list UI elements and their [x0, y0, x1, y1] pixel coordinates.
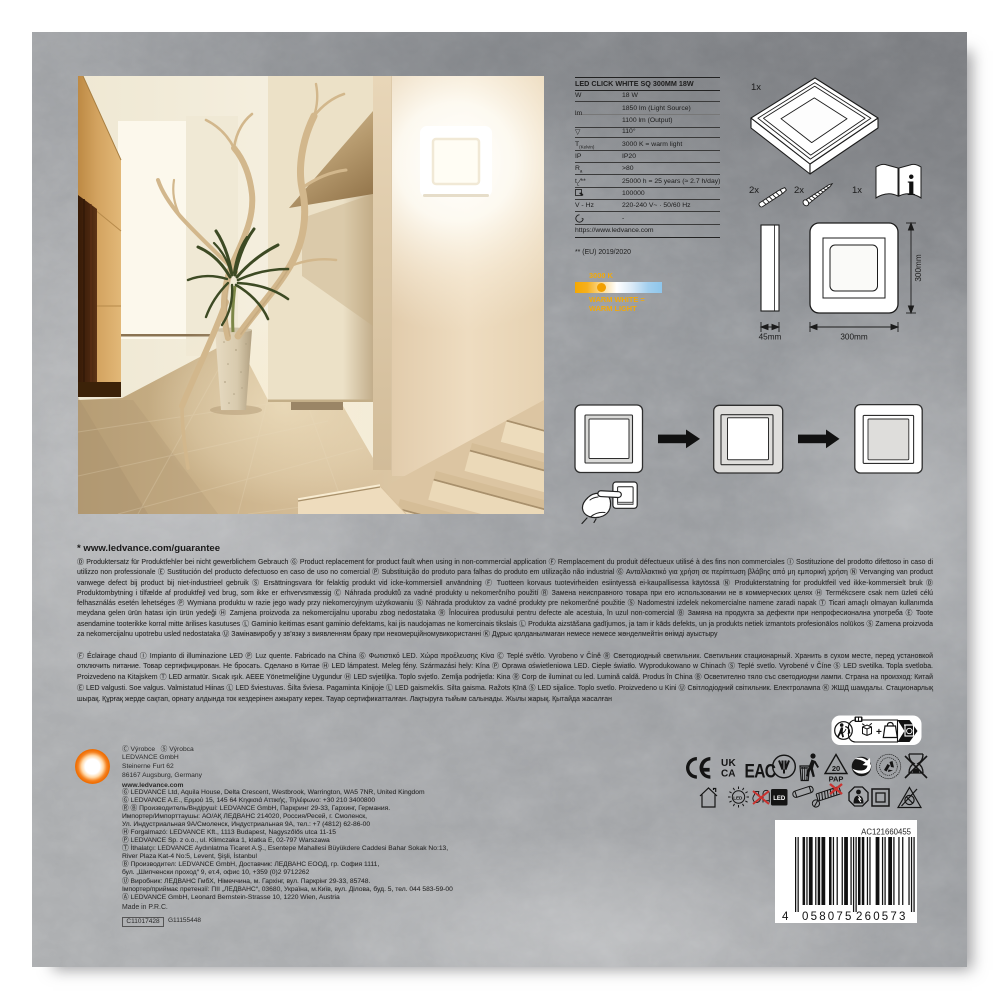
- svg-text:AC121660455: AC121660455: [861, 828, 912, 837]
- svg-text:UK: UK: [721, 758, 737, 769]
- svg-text:LED: LED: [733, 796, 743, 801]
- svg-text:058075: 058075: [802, 911, 854, 923]
- svg-text:PAP: PAP: [829, 775, 844, 784]
- svg-text:CA: CA: [721, 769, 735, 780]
- svg-text:260573: 260573: [856, 911, 908, 923]
- svg-text:EAC: EAC: [745, 760, 777, 782]
- svg-text:4: 4: [782, 911, 789, 923]
- svg-text:+: +: [876, 727, 882, 738]
- svg-text:20: 20: [832, 764, 840, 773]
- svg-text:LED: LED: [773, 796, 786, 802]
